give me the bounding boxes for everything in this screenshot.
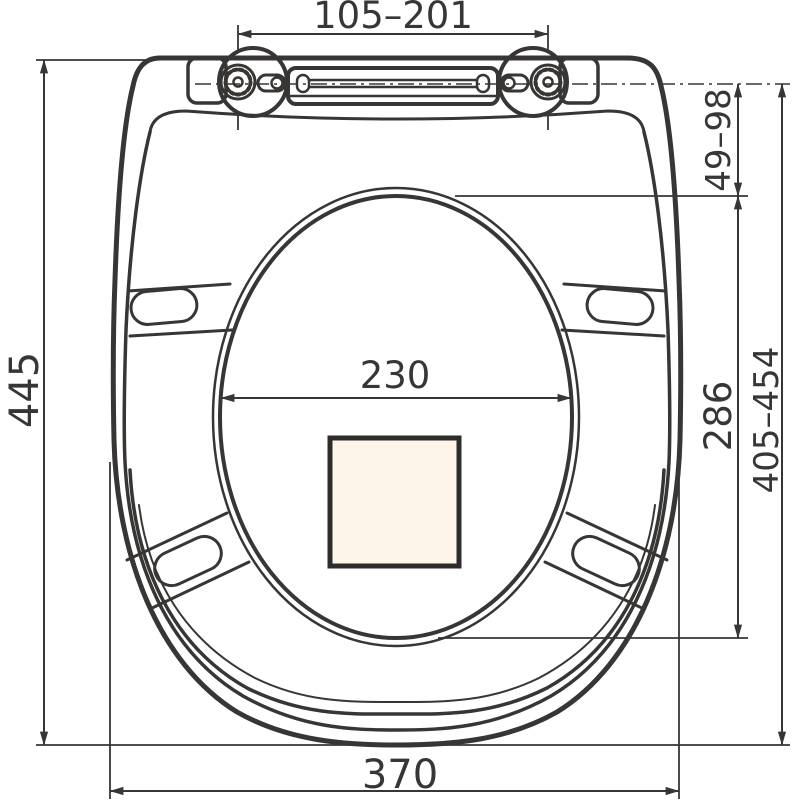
toilet-seat-dimension-drawing: 105–201 445 370 49–98 286 405–454 230 [0,0,800,800]
dim-label-hinge-spacing: 105–201 [313,0,473,37]
seat-lid-outer-contour [113,58,680,745]
hinge-right-screw-center [544,78,553,87]
dim-label-overall-width: 370 [362,752,438,798]
dim-label-hinge-to-opening: 49–98 [699,88,739,192]
bumper-upper-right [562,284,666,336]
bumper-upper-left [128,284,232,336]
seat-lid-top-inner-contour [150,111,644,132]
hinge-bar [288,68,498,104]
dim-label-opening-length: 286 [697,381,740,452]
seat-lid-inner-edge [124,132,669,730]
dim-label-opening-width: 230 [360,354,431,397]
drawing-canvas: 105–201 445 370 49–98 286 405–454 230 [0,0,800,800]
seat-opening-outer-line [213,188,579,646]
seat-opening-edge [220,196,572,638]
hinge-right-screw-knurl [536,70,561,95]
hinge-left-slot-hole [272,78,283,89]
dim-label-mounting-range: 405–454 [747,347,787,494]
center-cutout-square [330,438,459,566]
dim-label-overall-length: 445 [2,352,48,428]
hinge-left-screw-knurl [226,70,251,95]
hinge-right-slot-hole [504,78,515,89]
hinge-left-screw-center [234,78,243,87]
